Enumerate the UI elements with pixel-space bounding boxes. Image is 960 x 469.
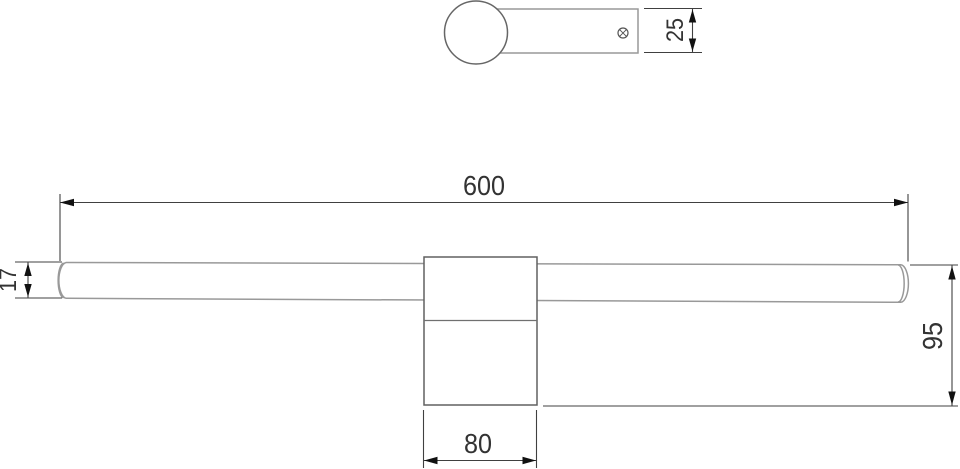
dim-depth-label: 25 bbox=[664, 18, 688, 42]
technical-drawing: 600 17 95 80 25 bbox=[0, 0, 960, 469]
arrow-up-icon bbox=[24, 263, 31, 276]
bar-right-cap-inner bbox=[898, 265, 904, 302]
arrow-down-icon bbox=[689, 39, 696, 52]
arrow-left-icon bbox=[424, 457, 438, 464]
arrow-up-icon bbox=[948, 266, 955, 280]
arrow-down-icon bbox=[24, 284, 31, 297]
top-view-canopy bbox=[445, 1, 508, 64]
arrow-up-icon bbox=[689, 10, 696, 23]
arrow-down-icon bbox=[948, 392, 955, 406]
dim-total-height-95 bbox=[543, 265, 958, 406]
dim-length-600 bbox=[60, 194, 908, 262]
dim-bar-height-17 bbox=[15, 262, 62, 298]
front-view bbox=[15, 194, 958, 468]
dim-bar-height-label: 17 bbox=[0, 268, 21, 292]
dim-body-width-label: 80 bbox=[464, 430, 492, 458]
arrow-left-icon bbox=[60, 199, 74, 207]
arrow-right-icon bbox=[523, 457, 537, 464]
arrow-right-icon bbox=[894, 199, 908, 207]
dim-length-label: 600 bbox=[463, 172, 505, 200]
drawing-lines bbox=[0, 0, 960, 469]
dim-total-height-label: 95 bbox=[919, 322, 947, 350]
front-view-body bbox=[424, 257, 537, 405]
